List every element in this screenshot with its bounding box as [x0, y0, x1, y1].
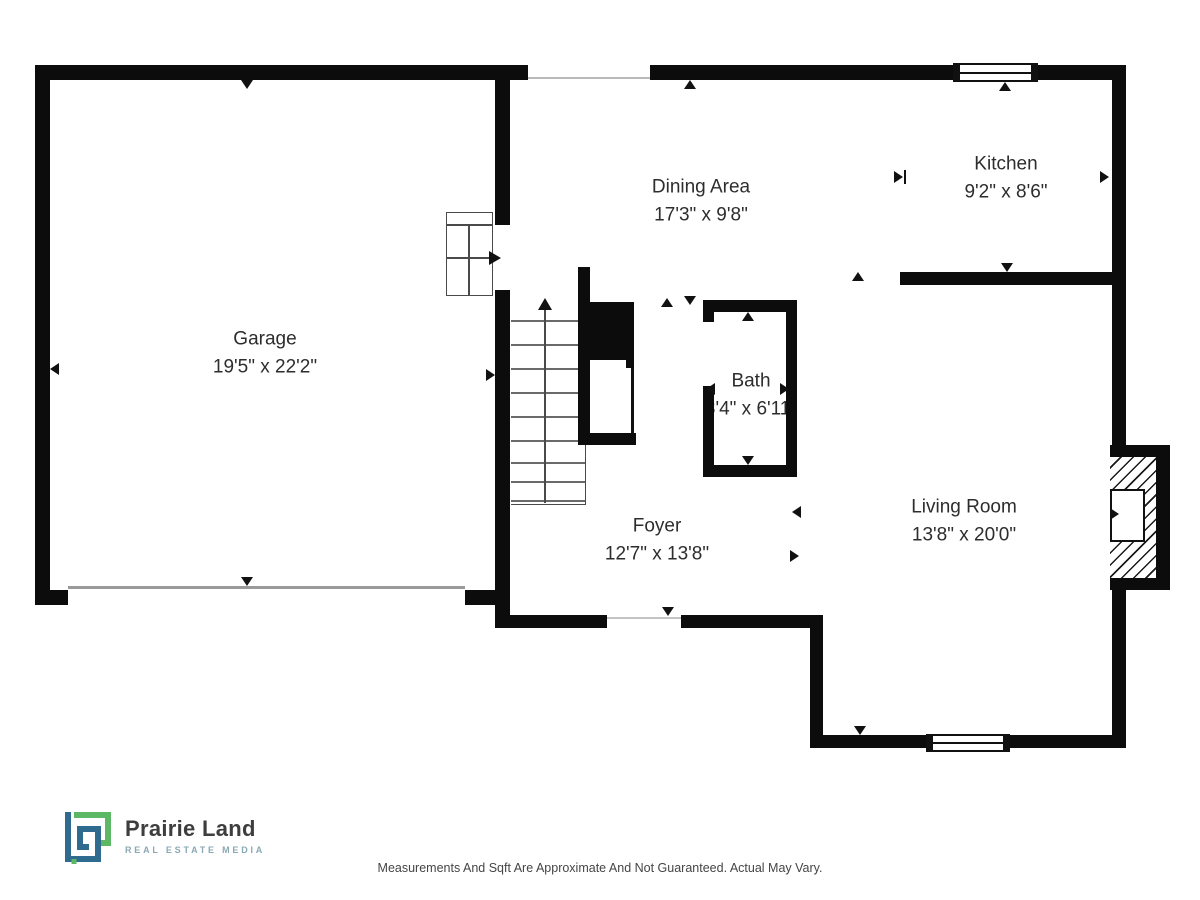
floorplan-page: Garage 19'5" x 22'2" Dining Area 17'3" x… [0, 0, 1200, 900]
marker [742, 312, 754, 321]
marker [50, 363, 59, 375]
room-label-dining: Dining Area 17'3" x 9'8" [652, 173, 750, 228]
company-logo: Prairie Land REAL ESTATE MEDIA [55, 810, 265, 864]
wall-garage-right-upper [495, 65, 510, 225]
marker [780, 383, 789, 395]
room-dims: 13'8" x 20'0" [911, 521, 1017, 549]
stair-treads-lower [511, 445, 586, 505]
room-name: Living Room [911, 493, 1017, 521]
wall-bath-left-lower [703, 386, 714, 477]
room-label-living: Living Room 13'8" x 20'0" [911, 493, 1017, 548]
garage-steps-arrow [489, 251, 501, 265]
wall-bath-top [703, 300, 797, 312]
room-name: Foyer [605, 512, 709, 540]
logo-tagline: REAL ESTATE MEDIA [125, 845, 265, 855]
room-name: Kitchen [964, 150, 1047, 178]
marker [706, 383, 715, 395]
room-name: Garage [213, 325, 317, 353]
stairs-mass-foot [626, 360, 634, 368]
room-label-garage: Garage 19'5" x 22'2" [213, 325, 317, 380]
wall-top-right [650, 65, 1126, 80]
fireplace-marker [1110, 508, 1119, 520]
marker [854, 726, 866, 735]
room-dims: 3'4" x 6'11" [705, 395, 797, 423]
prairie-land-logo-icon [55, 810, 115, 864]
marker [684, 296, 696, 305]
logo-title: Prairie Land [125, 816, 265, 842]
room-dims: 19'5" x 22'2" [213, 353, 317, 381]
marker [894, 171, 903, 183]
room-name: Dining Area [652, 173, 750, 201]
marker [1001, 263, 1013, 272]
marker [999, 82, 1011, 91]
livingroom-window [926, 734, 1010, 752]
window-mid-line [928, 742, 1008, 744]
window-cap [1003, 736, 1008, 750]
stairs-up-arrow [538, 298, 552, 310]
marker-tick [904, 170, 906, 184]
kitchen-window [953, 63, 1038, 82]
room-label-foyer: Foyer 12'7" x 13'8" [605, 512, 709, 567]
marker [852, 272, 864, 281]
marker [792, 506, 801, 518]
stairs-direction-shaft [544, 310, 546, 503]
wall-stairs-bottom [578, 433, 636, 445]
garage-steps-line-top [446, 224, 493, 226]
stairs-wall-mass [588, 302, 634, 360]
opening-line-top [528, 77, 650, 79]
wall-garage-bottom-left-stub [35, 590, 68, 605]
wall-foyer-front-left [495, 615, 607, 628]
disclaimer-text: Measurements And Sqft Are Approximate An… [0, 861, 1200, 875]
marker [684, 80, 696, 89]
wall-right-upper [1112, 65, 1126, 460]
wall-left [35, 65, 50, 605]
wall-kitchen-bottom [900, 272, 1112, 285]
room-label-bath: Bath 3'4" x 6'11" [705, 367, 797, 422]
wall-bath-bottom [703, 465, 797, 477]
marker [241, 577, 253, 586]
marker [1100, 171, 1109, 183]
wall-garage-right-lower [495, 290, 510, 628]
marker [790, 550, 799, 562]
window-mid-line [955, 72, 1036, 74]
logo-text: Prairie Land REAL ESTATE MEDIA [125, 810, 265, 855]
wall-right-lower [1112, 578, 1126, 748]
front-door-line [607, 617, 681, 619]
wall-foyer-front-right [681, 615, 822, 628]
marker [742, 456, 754, 465]
garage-steps-arrow-shaft [446, 257, 490, 259]
marker [662, 607, 674, 616]
marker [241, 80, 253, 89]
wall-livingroom-left [810, 615, 823, 748]
room-dims: 17'3" x 9'8" [652, 201, 750, 229]
garage-steps-line-vert [468, 224, 470, 296]
marker [661, 298, 673, 307]
wall-bath-left-upper [703, 300, 714, 322]
wall-top-left [35, 65, 528, 80]
room-label-kitchen: Kitchen 9'2" x 8'6" [964, 150, 1047, 205]
window-cap [1031, 65, 1036, 80]
garage-door-line [68, 586, 465, 589]
closet-right-edge [631, 368, 634, 433]
marker [486, 369, 495, 381]
room-dims: 9'2" x 8'6" [964, 178, 1047, 206]
room-dims: 12'7" x 13'8" [605, 540, 709, 568]
